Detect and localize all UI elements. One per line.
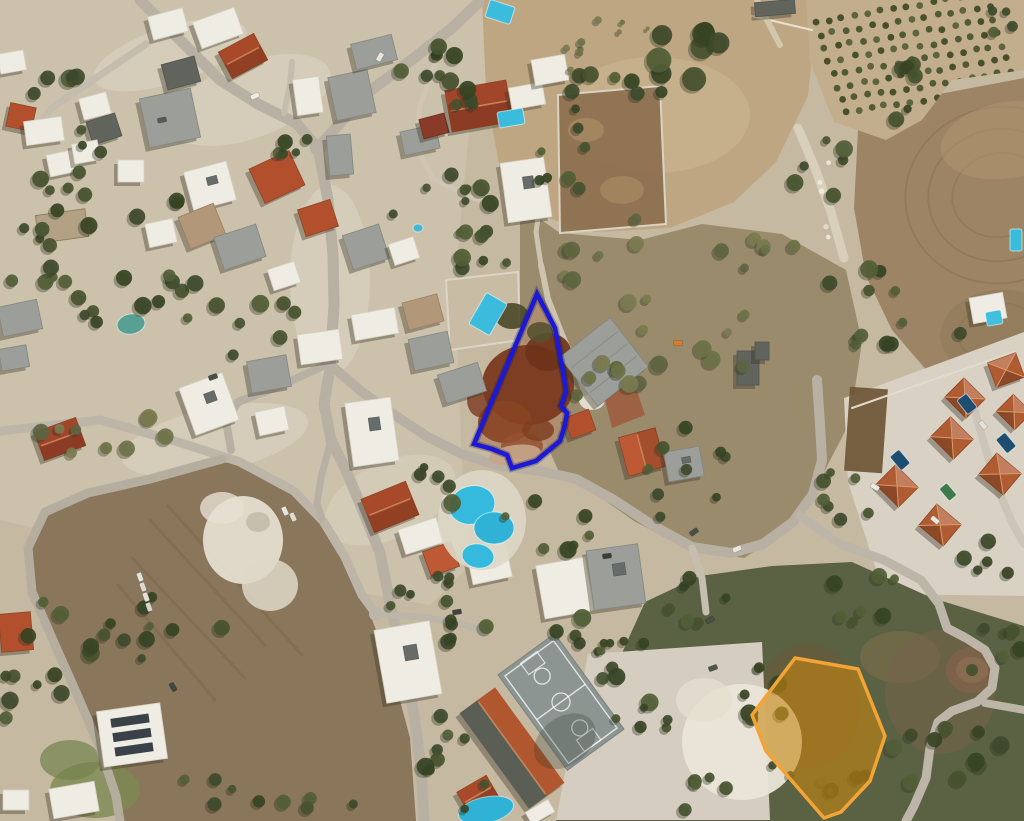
8	[638, 325, 649, 336]
5	[988, 6, 997, 15]
orchard-tree	[974, 6, 981, 13]
10	[118, 633, 131, 646]
5	[68, 69, 85, 86]
7	[890, 574, 899, 583]
orchard-tree	[920, 98, 927, 105]
orchard-tree	[813, 19, 820, 26]
13	[94, 146, 107, 159]
6	[276, 296, 290, 310]
8	[608, 668, 625, 685]
orchard-tree	[925, 67, 932, 74]
4	[645, 27, 649, 31]
6	[90, 316, 103, 329]
building-white-roof	[96, 703, 167, 767]
10	[38, 597, 49, 608]
building-gray	[582, 544, 646, 615]
9	[655, 86, 667, 98]
orchard-tree	[936, 67, 943, 74]
orchard-tree	[947, 10, 954, 17]
orchard-tree	[851, 12, 858, 19]
5	[563, 45, 570, 52]
7	[871, 568, 887, 584]
6	[71, 290, 86, 305]
7	[834, 513, 847, 526]
10	[992, 736, 1010, 754]
orchard-tree	[1003, 54, 1010, 61]
vehicle	[674, 341, 683, 346]
5	[459, 81, 476, 98]
10	[20, 628, 36, 644]
building-gray-roof	[247, 355, 292, 393]
orchard-tree	[852, 52, 859, 59]
13	[45, 185, 55, 195]
8	[187, 275, 203, 291]
4	[594, 16, 602, 24]
5	[228, 785, 236, 793]
10	[950, 770, 966, 786]
4	[617, 29, 622, 34]
6	[441, 595, 454, 608]
orchard-tree	[938, 26, 945, 33]
building-gray-roof	[0, 345, 30, 372]
7	[430, 38, 447, 55]
11	[473, 179, 490, 196]
orchard-tree	[899, 31, 906, 38]
7	[394, 63, 409, 78]
8	[694, 340, 711, 357]
4	[276, 795, 291, 810]
6	[786, 174, 803, 191]
4	[54, 424, 64, 434]
9	[442, 729, 453, 740]
10	[903, 775, 919, 791]
6	[819, 188, 825, 194]
6	[888, 111, 904, 127]
13	[63, 183, 74, 194]
6	[1, 671, 12, 682]
pool	[985, 310, 1003, 327]
9	[681, 464, 692, 475]
7	[572, 182, 585, 195]
orchard-tree	[941, 38, 948, 45]
8	[209, 297, 225, 313]
5	[180, 774, 190, 784]
orchard-tree	[877, 7, 884, 14]
orchard-tree	[962, 61, 969, 68]
5	[597, 646, 606, 655]
orchard-tree	[960, 49, 967, 56]
orchard-tree	[921, 54, 928, 61]
5	[863, 285, 874, 296]
6	[53, 685, 69, 701]
5	[119, 440, 135, 456]
6	[640, 704, 648, 712]
6	[288, 306, 301, 319]
6	[664, 603, 675, 614]
building-white-roof	[3, 790, 29, 810]
8	[737, 360, 749, 372]
13	[172, 197, 184, 209]
building-white	[341, 397, 399, 471]
7	[528, 494, 542, 508]
bare-soil-plot	[844, 387, 888, 473]
orchard-tree	[878, 89, 885, 96]
8	[35, 222, 50, 237]
garden-dirt	[600, 176, 644, 204]
orchard-tree	[873, 78, 880, 85]
11	[482, 195, 499, 212]
9	[652, 488, 664, 500]
11	[389, 209, 398, 218]
5	[209, 773, 222, 786]
6	[761, 245, 771, 255]
5	[502, 258, 511, 267]
building-white-roof	[145, 218, 177, 247]
orchard-tree	[893, 101, 900, 108]
6	[682, 571, 696, 585]
orchard-tree	[984, 45, 991, 52]
5	[292, 148, 300, 156]
orchard-tree	[869, 21, 876, 28]
8	[724, 328, 732, 336]
7	[421, 70, 433, 82]
9	[656, 441, 669, 454]
5	[443, 480, 456, 493]
building-white-roof	[531, 54, 569, 86]
9	[434, 709, 448, 723]
orchard-tree	[861, 78, 868, 85]
6	[826, 188, 841, 203]
building-gray-roof	[326, 134, 353, 176]
7	[621, 375, 639, 393]
building-gray-roof	[328, 69, 376, 120]
orchard-tree	[865, 51, 872, 58]
building-white	[289, 76, 324, 119]
6	[446, 633, 457, 644]
10	[972, 726, 985, 739]
13	[129, 208, 145, 224]
4	[71, 424, 81, 434]
orchard-tree	[917, 43, 924, 50]
6	[799, 161, 808, 170]
orchard-tree	[843, 108, 850, 115]
building-white	[114, 160, 144, 186]
5	[982, 556, 993, 567]
orchard-tree	[935, 11, 942, 18]
orchard-tree	[882, 22, 889, 29]
orchard-tree	[926, 26, 933, 33]
orchard-tree	[856, 67, 863, 74]
13	[76, 125, 86, 135]
7	[580, 142, 591, 153]
6	[835, 140, 853, 158]
7	[863, 508, 874, 519]
5	[443, 494, 461, 512]
6	[58, 275, 72, 289]
orchard-tree	[949, 64, 956, 71]
9	[715, 447, 726, 458]
6	[680, 615, 694, 629]
5	[576, 50, 583, 57]
7	[834, 611, 846, 623]
building-white	[92, 703, 167, 771]
9	[480, 779, 490, 789]
5	[157, 428, 173, 444]
6	[252, 295, 270, 313]
orchard-tree	[856, 107, 863, 114]
building-white-roof	[297, 329, 343, 365]
6	[722, 593, 731, 602]
7	[954, 327, 967, 340]
orchard-tree	[887, 34, 894, 41]
orchard-tree	[952, 22, 959, 29]
orchard-tree	[842, 69, 849, 76]
7	[446, 47, 463, 64]
7	[561, 171, 576, 186]
5	[302, 134, 313, 145]
5	[549, 624, 563, 638]
6	[822, 136, 830, 144]
orchard-tree	[909, 16, 916, 23]
6	[1, 692, 18, 709]
orchard-tree	[834, 85, 841, 92]
rubble-mound	[246, 512, 270, 532]
5	[891, 286, 901, 296]
orchard-tree	[973, 46, 980, 53]
6	[406, 590, 415, 599]
8	[183, 313, 193, 323]
9	[652, 25, 672, 45]
6	[214, 620, 230, 636]
9	[459, 733, 469, 743]
6	[740, 264, 749, 273]
10	[105, 618, 116, 629]
8	[638, 638, 649, 649]
7	[817, 494, 830, 507]
orchard-tree	[929, 80, 936, 87]
6	[826, 160, 831, 165]
7	[848, 617, 858, 627]
orchard-tree	[831, 70, 838, 77]
7	[501, 512, 509, 520]
orchard-tree	[931, 42, 938, 49]
9	[646, 48, 671, 73]
6	[273, 330, 288, 345]
orchard-tree	[839, 96, 846, 103]
7	[537, 147, 545, 155]
5	[1006, 624, 1020, 638]
building-white	[0, 790, 29, 814]
orchard-tree	[847, 82, 854, 89]
6	[908, 68, 923, 83]
5	[453, 249, 471, 267]
7	[740, 689, 750, 699]
orchard-tree	[843, 27, 850, 34]
orchard-tree	[890, 89, 897, 96]
10	[927, 732, 942, 747]
5	[40, 70, 55, 85]
building-gray-roof	[586, 544, 646, 611]
8	[573, 637, 585, 649]
6	[445, 614, 457, 626]
orchard-tree	[880, 63, 887, 70]
orchard-tree	[912, 30, 919, 37]
6	[116, 270, 132, 286]
9	[712, 493, 721, 502]
8	[650, 356, 668, 374]
7	[826, 575, 843, 592]
6	[0, 711, 13, 724]
8	[152, 295, 165, 308]
10	[47, 667, 62, 682]
8	[19, 223, 29, 233]
aerial-map-view	[0, 0, 1024, 821]
6	[693, 617, 704, 628]
rooftop-unit	[403, 644, 419, 661]
orchard-tree	[878, 47, 885, 54]
orchard-tree	[835, 42, 842, 49]
5	[140, 409, 157, 426]
9	[460, 805, 469, 814]
7	[609, 72, 620, 83]
pool	[1010, 229, 1022, 251]
building-white	[496, 157, 552, 227]
8	[6, 274, 18, 286]
13	[73, 165, 86, 178]
5	[981, 533, 996, 548]
7	[850, 473, 860, 483]
orchard-tree	[890, 46, 897, 53]
8	[619, 637, 628, 646]
orchard-tree	[978, 18, 985, 25]
orchard-tree	[880, 101, 887, 108]
junction	[369, 607, 383, 621]
orchard-tree	[964, 19, 971, 26]
6	[228, 349, 239, 360]
6	[823, 224, 828, 229]
7	[855, 606, 865, 616]
8	[134, 297, 151, 314]
6	[33, 680, 42, 689]
6	[826, 235, 831, 240]
10	[905, 729, 918, 742]
8	[739, 310, 749, 320]
orchard-tree	[895, 18, 902, 25]
orchard-tree	[837, 14, 844, 21]
5	[997, 651, 1009, 663]
5	[28, 87, 41, 100]
orchard-tree	[978, 60, 985, 67]
small-pool	[413, 224, 423, 232]
orchard-tree	[824, 58, 831, 65]
9	[708, 32, 729, 53]
orchard-tree	[902, 4, 909, 11]
building-white-roof	[345, 397, 399, 467]
orchard-tree	[955, 36, 962, 43]
8	[163, 269, 176, 282]
8	[595, 251, 604, 260]
building-white-roof	[24, 116, 65, 145]
6	[479, 619, 494, 634]
10	[885, 739, 902, 756]
orchard-tree	[920, 14, 927, 21]
orchard-tree	[933, 52, 940, 59]
rooftop-unit	[368, 417, 381, 431]
5	[253, 795, 265, 807]
5	[1002, 7, 1011, 16]
5	[822, 275, 837, 290]
orchard-tree	[885, 75, 892, 82]
7	[583, 371, 596, 384]
6	[612, 714, 621, 723]
8	[564, 271, 581, 288]
9	[682, 67, 706, 91]
8	[43, 260, 59, 276]
8	[564, 242, 580, 258]
knoll-tree	[966, 664, 978, 676]
5	[1002, 567, 1014, 579]
orchard-tree	[837, 56, 844, 63]
6	[903, 105, 911, 113]
orchard-tree	[967, 33, 974, 40]
11	[444, 167, 458, 181]
building-white-roof	[500, 157, 552, 223]
orchard-tree	[947, 52, 954, 59]
5	[456, 229, 464, 237]
6	[634, 721, 646, 733]
5	[957, 551, 972, 566]
orchard-tree	[818, 33, 825, 40]
11	[461, 197, 469, 205]
7	[559, 541, 576, 558]
orchard-tree	[903, 86, 910, 93]
13	[78, 187, 92, 201]
13	[80, 217, 97, 234]
5	[705, 773, 715, 783]
5	[1007, 21, 1018, 32]
white-ground-patch	[676, 678, 732, 722]
6	[386, 601, 395, 610]
8	[620, 294, 637, 311]
orchard-tree	[860, 38, 867, 45]
rubble-patch	[242, 559, 298, 611]
rust-canopy	[522, 419, 554, 441]
7	[571, 389, 583, 401]
11	[460, 184, 471, 195]
vehicle	[602, 553, 612, 559]
10	[938, 721, 953, 736]
building-dark-roof	[755, 342, 769, 360]
orchard-tree	[902, 43, 909, 50]
5	[719, 781, 733, 795]
4	[33, 424, 50, 441]
10	[53, 606, 69, 622]
5	[678, 803, 691, 816]
6	[234, 318, 245, 329]
satellite-image	[0, 0, 1024, 821]
10	[137, 654, 145, 662]
rubble-patch	[200, 492, 244, 524]
7	[582, 66, 598, 82]
6	[787, 240, 800, 253]
5	[690, 779, 701, 790]
7	[542, 173, 552, 183]
4	[66, 448, 77, 459]
7	[630, 86, 644, 100]
7	[851, 340, 861, 350]
7	[573, 123, 584, 134]
5	[432, 470, 444, 482]
